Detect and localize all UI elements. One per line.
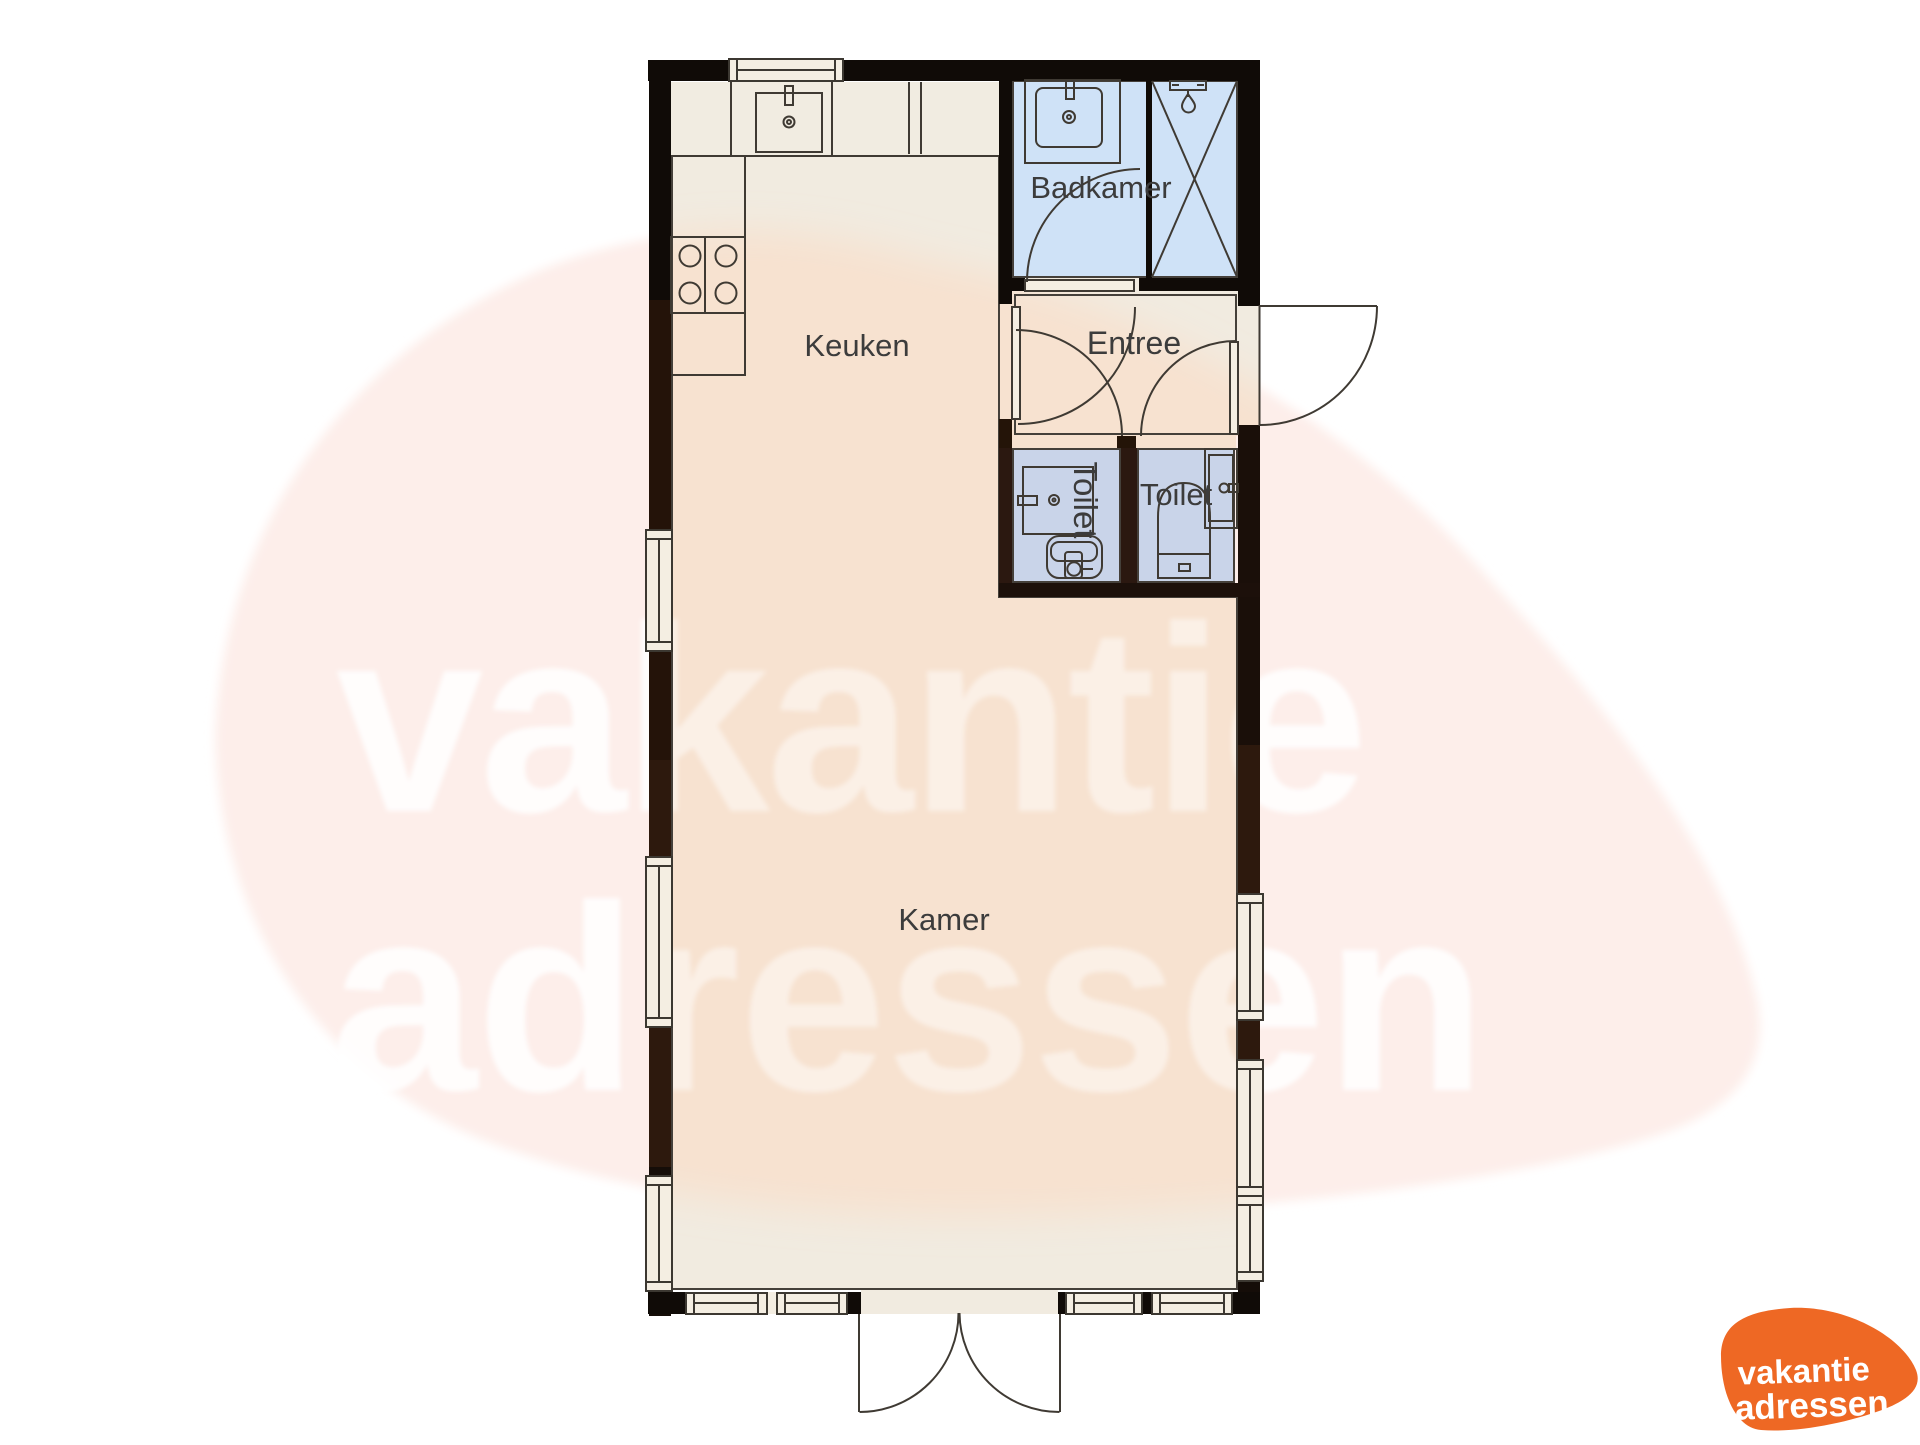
svg-text:adressen: adressen bbox=[1734, 1383, 1889, 1427]
svg-text:Toilet: Toilet bbox=[1140, 477, 1213, 512]
svg-text:Entree: Entree bbox=[1087, 325, 1181, 361]
svg-text:Toilet: Toilet bbox=[1067, 461, 1104, 538]
svg-text:Badkamer: Badkamer bbox=[1030, 170, 1171, 205]
svg-text:Keuken: Keuken bbox=[804, 328, 909, 363]
svg-text:Kamer: Kamer bbox=[898, 902, 989, 937]
